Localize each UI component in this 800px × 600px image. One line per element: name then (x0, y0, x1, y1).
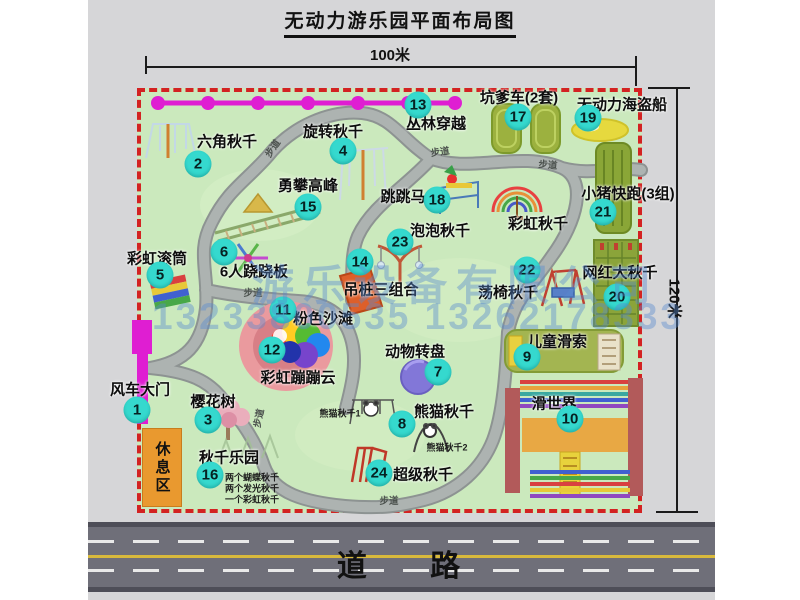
attraction-label-20: 网红大秋千 (582, 262, 657, 283)
page-title: 无动力游乐园平面布局图 (0, 6, 800, 38)
attraction-badge-9: 9 (514, 344, 541, 371)
attraction-label-24: 超级秋千 (393, 464, 453, 485)
attraction-badge-12: 12 (259, 337, 286, 364)
sub-label-5: 一个彩虹秋千 (225, 493, 279, 506)
rest-area-label: 休息区 (152, 441, 173, 495)
road: 道 路 (88, 522, 715, 592)
attraction-label-15: 勇攀高峰 (278, 175, 338, 196)
attraction-badge-18: 18 (424, 187, 451, 214)
dimension-tick-top-left (145, 56, 147, 74)
page-title-text: 无动力游乐园平面布局图 (284, 6, 515, 38)
attraction-badge-21: 21 (590, 199, 617, 226)
attraction-badge-16: 16 (197, 462, 224, 489)
attraction-badge-19: 19 (575, 105, 602, 132)
attraction-badge-2: 2 (185, 151, 212, 178)
road-label: 道 路 (88, 541, 715, 585)
rainbow-swing-label: 彩虹秋千 (508, 213, 568, 234)
footpath-label-3: 步道 (538, 156, 558, 172)
dimension-tick-right-bottom (656, 511, 698, 513)
footpath-label-2: 步道 (430, 143, 451, 160)
attraction-badge-13: 13 (405, 92, 432, 119)
rest-area: 休息区 (142, 428, 182, 507)
footpath-label-6: 步道 (379, 493, 398, 507)
attraction-badge-24: 24 (366, 460, 393, 487)
attraction-badge-6: 6 (211, 239, 238, 266)
attraction-badge-22: 22 (514, 257, 541, 284)
attraction-label-4: 旋转秋千 (303, 121, 363, 142)
attraction-label-8: 熊猫秋千 (414, 401, 474, 422)
attraction-badge-8: 8 (389, 411, 416, 438)
attraction-label-14: 吊桩三组合 (343, 279, 418, 300)
attraction-badge-5: 5 (147, 262, 174, 289)
attraction-badge-3: 3 (195, 407, 222, 434)
attraction-label-11: 粉色沙滩 (293, 308, 353, 329)
footpath-label-4: 步道 (243, 285, 262, 299)
attraction-badge-7: 7 (425, 359, 452, 386)
attraction-badge-20: 20 (604, 284, 631, 311)
attraction-label-18: 跳跳马 (380, 186, 425, 207)
dimension-width-label: 100米 (340, 44, 440, 65)
sub-label-2: 熊猫秋千2 (426, 441, 467, 454)
dimension-tick-top-right (635, 56, 637, 86)
attraction-badge-14: 14 (347, 249, 374, 276)
park-layout-plan: 无动力游乐园平面布局图 100米 120米 (0, 0, 800, 600)
attraction-label-2: 六角秋千 (197, 131, 257, 152)
attraction-badge-23: 23 (387, 229, 414, 256)
attraction-badge-15: 15 (295, 194, 322, 221)
attraction-label-23: 泡泡秋千 (410, 220, 470, 241)
attraction-badge-17: 17 (505, 104, 532, 131)
attraction-badge-11: 11 (270, 297, 297, 324)
sub-label-1: 熊猫秋千1 (319, 407, 360, 420)
attraction-badge-1: 1 (124, 397, 151, 424)
attraction-label-22: 荡椅秋千 (478, 282, 538, 303)
dimension-tick-right-top (648, 87, 690, 89)
dimension-height-label: 120米 (665, 278, 686, 318)
dimension-line-top (145, 66, 637, 68)
attraction-label-12: 彩虹蹦蹦云 (260, 367, 335, 388)
attraction-badge-4: 4 (330, 138, 357, 165)
attraction-badge-10: 10 (557, 406, 584, 433)
